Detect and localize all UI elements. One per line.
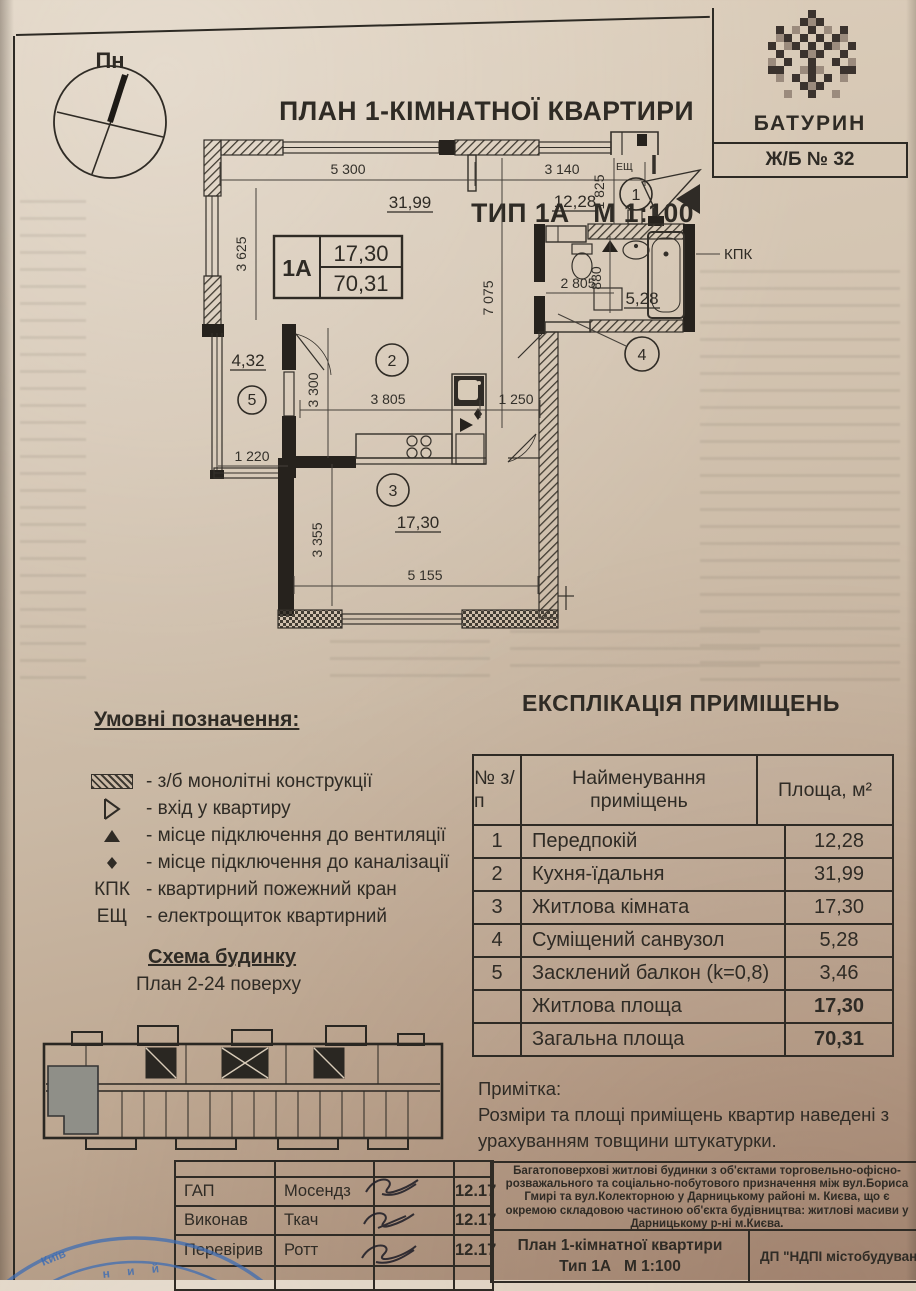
area-kitchen-dining: 31,99 xyxy=(389,193,432,212)
photographed-floorplan-document: { "header": { "title_line1": "ПЛАН 1-КІМ… xyxy=(0,0,916,1280)
compass-rose xyxy=(54,66,166,178)
room-circle-1: 1 xyxy=(632,187,641,204)
dim-3140: 3 140 xyxy=(544,161,579,177)
table-row: 4 Суміщений санвузол 5,28 xyxy=(474,925,892,958)
role: ГАП xyxy=(176,1178,276,1205)
vent-triangle-icon xyxy=(102,829,122,843)
legend-item-label: - вхід у квартиру xyxy=(146,798,291,820)
project-block: Багатоповерхові житлові будинки з об'єкт… xyxy=(490,1161,916,1283)
legend-item-label: - місце підключення до каналізації xyxy=(146,852,449,874)
legend-item-entry: - вхід у квартиру xyxy=(86,795,486,822)
table-header-row: № з/п Найменування приміщень Площа, м² xyxy=(474,756,892,826)
stamp-type: 1А xyxy=(282,255,311,281)
row-area: 12,28 xyxy=(786,826,892,857)
table-row-living-total: Житлова площа 17,30 xyxy=(474,991,892,1024)
dim-3300: 3 300 xyxy=(305,372,321,407)
row-name: Загальна площа xyxy=(522,1024,786,1055)
logo-name: БАТУРИН xyxy=(750,112,870,136)
row-name: Засклений балкон (k=0,8) xyxy=(522,958,786,989)
area-living-room: 17,30 xyxy=(397,513,440,532)
dim-5300: 5 300 xyxy=(330,161,365,177)
note-title: Примітка: xyxy=(478,1076,910,1102)
row-area: 70,31 xyxy=(786,1024,892,1055)
col-header-num: № з/п xyxy=(474,756,522,824)
col-header-name: Найменування приміщень xyxy=(522,756,758,824)
row-area: 17,30 xyxy=(786,892,892,923)
hatched-wall-icon xyxy=(91,774,133,789)
apartment-stamp: 1А 17,30 70,31 xyxy=(274,236,402,298)
dim-5155: 5 155 xyxy=(407,567,442,583)
room-circle-2: 2 xyxy=(388,353,397,370)
dim-1250: 1 250 xyxy=(498,391,533,407)
legend-item-label: - електрощиток квартирний xyxy=(146,906,387,928)
stamp-total-area: 70,31 xyxy=(333,271,388,296)
legend: - з/б монолітні конструкції - вхід у ква… xyxy=(86,768,486,930)
signatures xyxy=(352,1170,467,1275)
esh-label: ЕЩ xyxy=(616,161,633,173)
row-area: 17,30 xyxy=(786,991,892,1022)
legend-item-vent: - місце підключення до вентиляції xyxy=(86,822,486,849)
table-row: 3 Житлова кімната 17,30 xyxy=(474,892,892,925)
dim-7075: 7 075 xyxy=(480,280,496,315)
row-name: Передпокій xyxy=(522,826,786,857)
legend-item-wall: - з/б монолітні конструкції xyxy=(86,768,486,795)
bleed-through-text xyxy=(20,200,86,680)
kpk-symbol: КПК xyxy=(86,879,138,901)
compass-north-label: Пн xyxy=(95,48,124,73)
stamp-living-area: 17,30 xyxy=(333,241,388,266)
row-area: 5,28 xyxy=(786,925,892,956)
north-compass: Пн xyxy=(48,42,198,192)
entrance-arrow-icon xyxy=(676,184,700,214)
explication-table: № з/п Найменування приміщень Площа, м² 1… xyxy=(472,754,894,1057)
dim-880: 880 xyxy=(588,266,604,290)
room-circle-5: 5 xyxy=(248,392,257,409)
blue-round-stamp: Київ н и й xyxy=(0,1206,285,1280)
row-num: 1 xyxy=(474,826,522,857)
apartment-floorplan: 5 300 3 140 1 825 3 625 7 075 2 805 880 … xyxy=(190,128,760,676)
sheet-title: План 1-кімнатної квартири Тип 1А М 1:100 xyxy=(492,1231,750,1281)
legend-item-label: - квартирний пожежний кран xyxy=(146,879,397,901)
dim-3355: 3 355 xyxy=(309,522,325,557)
room-circle-3: 3 xyxy=(389,483,398,500)
building-schema-drawing xyxy=(26,1004,462,1164)
row-name: Кухня-їдальня xyxy=(522,859,786,890)
dim-3805: 3 805 xyxy=(370,391,405,407)
project-description: Багатоповерхові житлові будинки з об'єкт… xyxy=(492,1163,916,1231)
sheet-title-line1: План 1-кімнатної квартири xyxy=(518,1235,723,1256)
title-line1: ПЛАН 1-КІМНАТНОЇ КВАРТИРИ xyxy=(268,94,694,128)
row-num: 5 xyxy=(474,958,522,989)
legend-heading: Умовні позначення: xyxy=(94,708,299,732)
plan-walls xyxy=(202,132,695,628)
esh-symbol: ЕЩ xyxy=(86,906,138,928)
legend-item-label: - місце підключення до вентиляції xyxy=(146,825,446,847)
legend-item-sewer: - місце підключення до каналізації xyxy=(86,849,486,876)
kpk-label: КПК xyxy=(724,246,753,263)
sheet-frame-left xyxy=(13,36,15,1280)
explication-heading: ЕКСПЛІКАЦІЯ ПРИМІЩЕНЬ xyxy=(472,690,890,717)
area-hall: 12,28 xyxy=(554,192,597,211)
table-row: 5 Засклений балкон (k=0,8) 3,46 xyxy=(474,958,892,991)
row-name: Житлова площа xyxy=(522,991,786,1022)
stamp-text-kyiv: Київ xyxy=(39,1246,68,1269)
note: Примітка: Розміри та площі приміщень ква… xyxy=(478,1076,910,1154)
dim-3625: 3 625 xyxy=(233,236,249,271)
note-text: Розміри та площі приміщень квартир навед… xyxy=(478,1104,889,1151)
table-row: 2 Кухня-їдальня 31,99 xyxy=(474,859,892,892)
schema-subheading: План 2-24 поверху xyxy=(136,974,301,996)
baturyn-ornament-logo xyxy=(760,10,768,18)
table-row: 1 Передпокій 12,28 xyxy=(474,826,892,859)
organization-name: ДП "НДПІ містобудування" xyxy=(750,1231,916,1281)
legend-item-kpk: КПК - квартирний пожежний кран xyxy=(86,876,486,903)
schema-heading: Схема будинку xyxy=(148,946,296,969)
legend-item-esh: ЕЩ - електрощиток квартирний xyxy=(86,903,486,930)
row-num: 2 xyxy=(474,859,522,890)
sewer-diamond-icon xyxy=(106,856,118,870)
highlighted-apartment-unit xyxy=(48,1066,98,1134)
entry-arrow-icon xyxy=(102,797,122,821)
row-num xyxy=(474,991,522,1022)
kitchen-fixtures xyxy=(356,374,486,464)
area-bathroom: 5,28 xyxy=(625,289,658,308)
logo-column-separator xyxy=(712,8,714,144)
row-name: Житлова кімната xyxy=(522,892,786,923)
area-balcony: 4,32 xyxy=(231,351,264,370)
col-header-area: Площа, м² xyxy=(758,756,892,824)
row-num xyxy=(474,1024,522,1055)
legend-item-label: - з/б монолітні конструкції xyxy=(146,771,372,793)
room-circle-4: 4 xyxy=(638,347,647,364)
sheet-title-line2: Тип 1А М 1:100 xyxy=(559,1256,681,1277)
row-num: 4 xyxy=(474,925,522,956)
table-row-grand-total: Загальна площа 70,31 xyxy=(474,1024,892,1055)
dim-1220: 1 220 xyxy=(234,448,269,464)
row-num: 3 xyxy=(474,892,522,923)
row-area: 3,46 xyxy=(786,958,892,989)
photo-edge-shadow-left xyxy=(0,0,14,1280)
row-name: Суміщений санвузол xyxy=(522,925,786,956)
row-area: 31,99 xyxy=(786,859,892,890)
